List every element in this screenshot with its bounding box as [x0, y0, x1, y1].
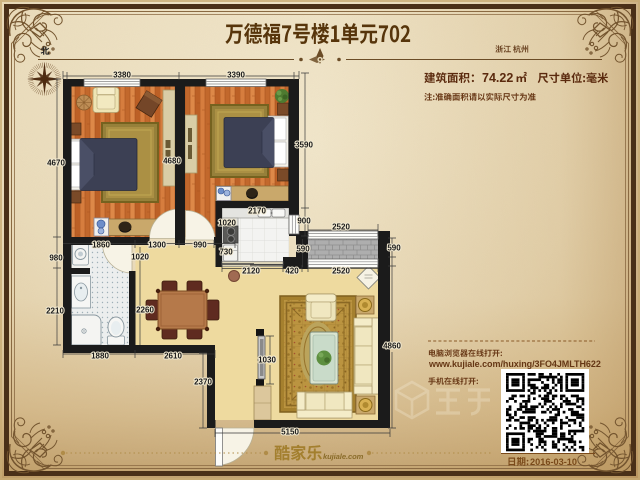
svg-text:420: 420: [285, 267, 299, 276]
svg-text:2210: 2210: [46, 307, 64, 316]
svg-text:2610: 2610: [164, 352, 182, 361]
svg-text:2260: 2260: [136, 306, 154, 315]
svg-text:4860: 4860: [383, 342, 401, 351]
svg-text:3380: 3380: [113, 71, 131, 80]
svg-text:2170: 2170: [248, 207, 266, 216]
svg-text:1880: 1880: [91, 352, 109, 361]
svg-text:4670: 4670: [47, 159, 65, 168]
svg-text:590: 590: [296, 245, 310, 254]
svg-text:900: 900: [297, 217, 311, 226]
svg-text:1300: 1300: [148, 241, 166, 250]
svg-text:www.kujiale.com/huxing/3FO4JML: www.kujiale.com/huxing/3FO4JMLTH622: [428, 359, 601, 369]
svg-text:2520: 2520: [332, 223, 350, 232]
svg-text:980: 980: [49, 254, 63, 263]
svg-text:1030: 1030: [258, 356, 276, 365]
svg-text:2370: 2370: [194, 378, 212, 387]
svg-text:730: 730: [219, 248, 233, 257]
svg-text:990: 990: [193, 241, 207, 250]
svg-text:1860: 1860: [92, 241, 110, 250]
svg-text:2520: 2520: [332, 267, 350, 276]
svg-text:4680: 4680: [163, 157, 181, 166]
svg-text:1020: 1020: [131, 253, 149, 262]
svg-text:3390: 3390: [227, 71, 245, 80]
svg-text:3590: 3590: [295, 141, 313, 150]
svg-text:74.22: 74.22: [482, 71, 513, 85]
svg-text:2016-03-10: 2016-03-10: [530, 457, 577, 467]
svg-text:5150: 5150: [281, 428, 299, 437]
svg-text:590: 590: [387, 244, 401, 253]
svg-text:2120: 2120: [242, 267, 260, 276]
svg-text:1020: 1020: [218, 219, 236, 228]
svg-text:kujiale.com: kujiale.com: [323, 452, 364, 461]
